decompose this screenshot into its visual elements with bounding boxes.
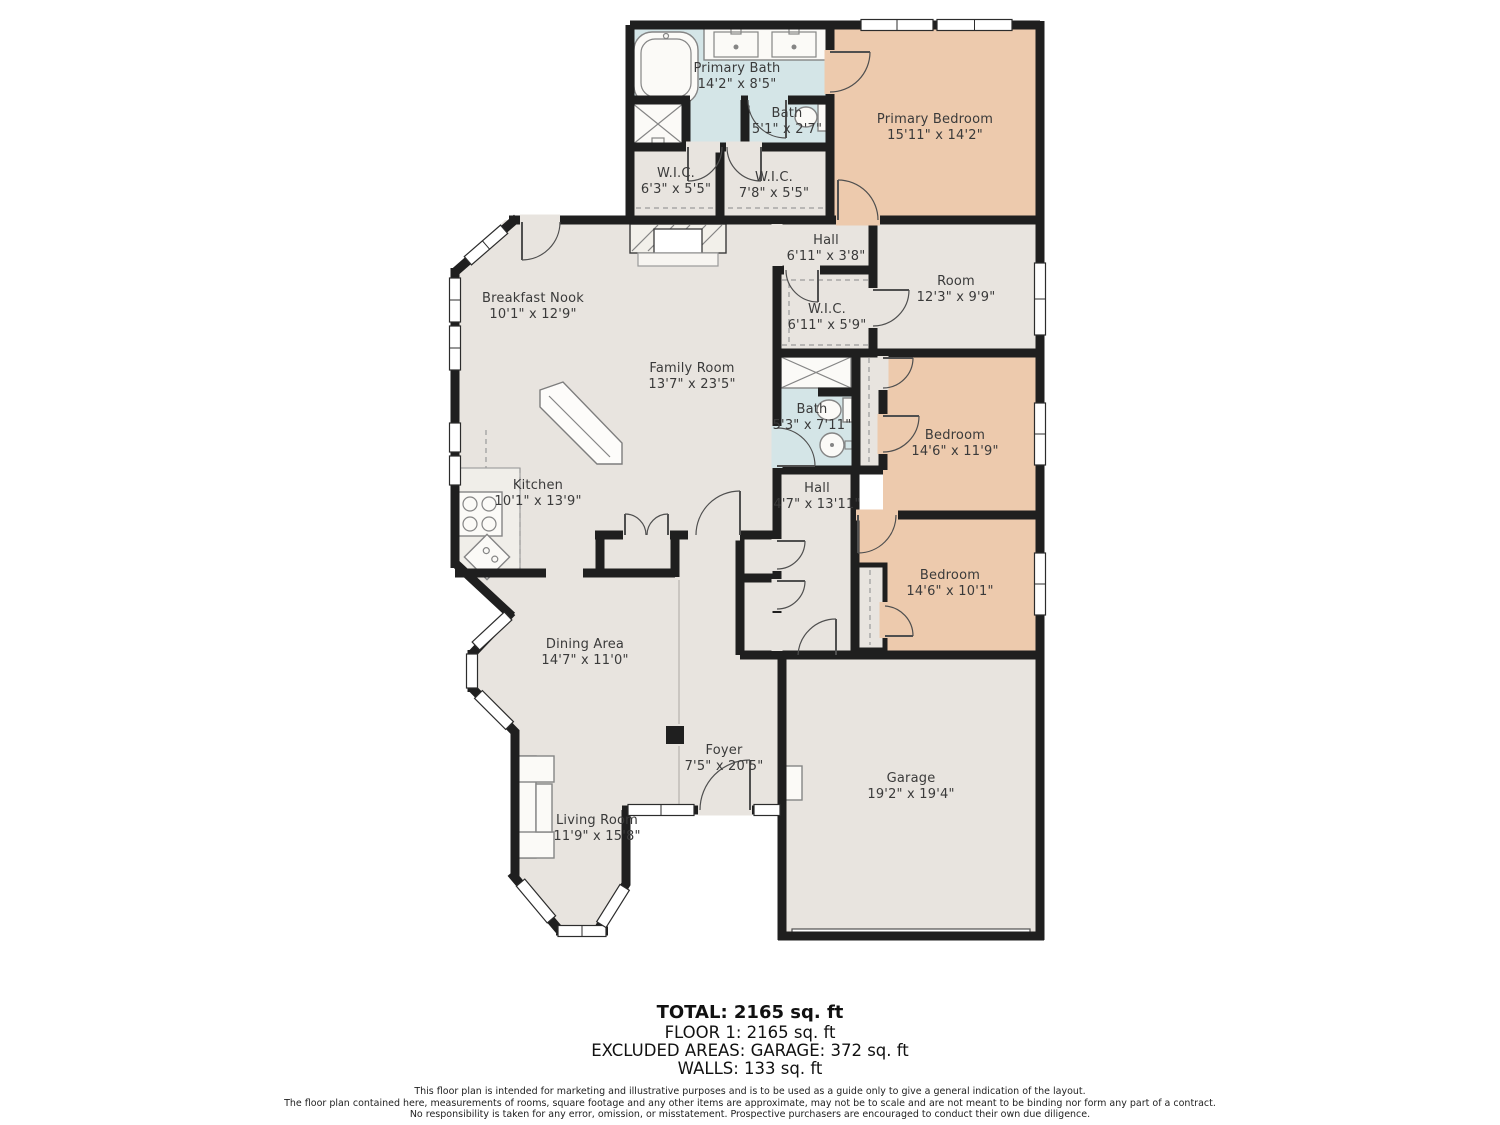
window [1035, 263, 1046, 335]
room-label-primary-bath: Primary Bath14'2" x 8'5" [694, 61, 781, 93]
fireplace-icon [630, 224, 726, 266]
window [450, 456, 461, 485]
room-label-hall-lower: Hall4'7" x 13'11" [773, 481, 860, 513]
room-label-dining-area: Dining Area14'7" x 11'0" [541, 637, 628, 669]
room-label-bedroom-2: Bedroom14'6" x 10'1" [906, 568, 993, 600]
floor-plan-page: Primary Bath14'2" x 8'5" Bath5'1" x 2'7"… [0, 0, 1500, 1125]
shower-icon [632, 103, 684, 145]
room-label-family-room: Family Room13'7" x 23'5" [648, 361, 735, 393]
area-summary: TOTAL: 2165 sq. ft FLOOR 1: 2165 sq. ft … [0, 1002, 1500, 1121]
room-label-wic-1: W.I.C.6'3" x 5'5" [641, 166, 711, 198]
opening [772, 224, 783, 266]
sofa-icon [518, 756, 554, 858]
room-label-living-room: Living Room11'9" x 15'8" [553, 813, 640, 845]
room-label-kitchen: Kitchen10'1" x 13'9" [494, 478, 581, 510]
window [1035, 553, 1046, 615]
room-label-bath-small: Bath5'1" x 2'7" [752, 106, 822, 138]
room-label-bedroom-1: Bedroom14'6" x 11'9" [911, 428, 998, 460]
window [1035, 403, 1046, 465]
window [450, 278, 461, 322]
garage-step [784, 766, 802, 800]
window [937, 20, 1012, 31]
room-label-primary-bedroom: Primary Bedroom15'11" x 14'2" [877, 112, 993, 144]
room-label-garage: Garage19'2" x 19'4" [867, 771, 954, 803]
window [450, 326, 461, 370]
room-label-breakfast-nook: Breakfast Nook10'1" x 12'9" [482, 291, 584, 323]
window [558, 926, 606, 937]
walls-area: WALLS: 133 sq. ft [0, 1060, 1500, 1078]
window-sidelight [754, 805, 780, 816]
floor1-area: FLOOR 1: 2165 sq. ft [0, 1024, 1500, 1042]
shower-icon [781, 357, 851, 388]
bathtub-icon [634, 32, 698, 104]
window [861, 20, 933, 31]
floor-plan-drawing [0, 0, 1500, 1125]
window [467, 654, 478, 688]
disclaimer-text: This floor plan is intended for marketin… [0, 1086, 1500, 1121]
wall-stub [666, 726, 684, 744]
room-label-bath-2: Bath5'3" x 7'11" [773, 402, 852, 434]
room-label-room: Room12'3" x 9'9" [917, 274, 996, 306]
room-label-wic-3: W.I.C.6'11" x 5'9" [788, 302, 867, 334]
excluded-area: EXCLUDED AREAS: GARAGE: 372 sq. ft [0, 1042, 1500, 1060]
window [450, 423, 461, 452]
total-area: TOTAL: 2165 sq. ft [0, 1002, 1500, 1024]
disclaimer-line-3: No responsibility is taken for any error… [0, 1109, 1500, 1121]
room-label-hall-upper: Hall6'11" x 3'8" [787, 233, 866, 265]
room-label-foyer: Foyer7'5" x 20'5" [685, 743, 764, 775]
double-vanity-icon [704, 27, 830, 60]
disclaimer-line-2: The floor plan contained here, measureme… [0, 1098, 1500, 1110]
disclaimer-line-1: This floor plan is intended for marketin… [0, 1086, 1500, 1098]
room-label-wic-2: W.I.C.7'8" x 5'5" [739, 170, 809, 202]
